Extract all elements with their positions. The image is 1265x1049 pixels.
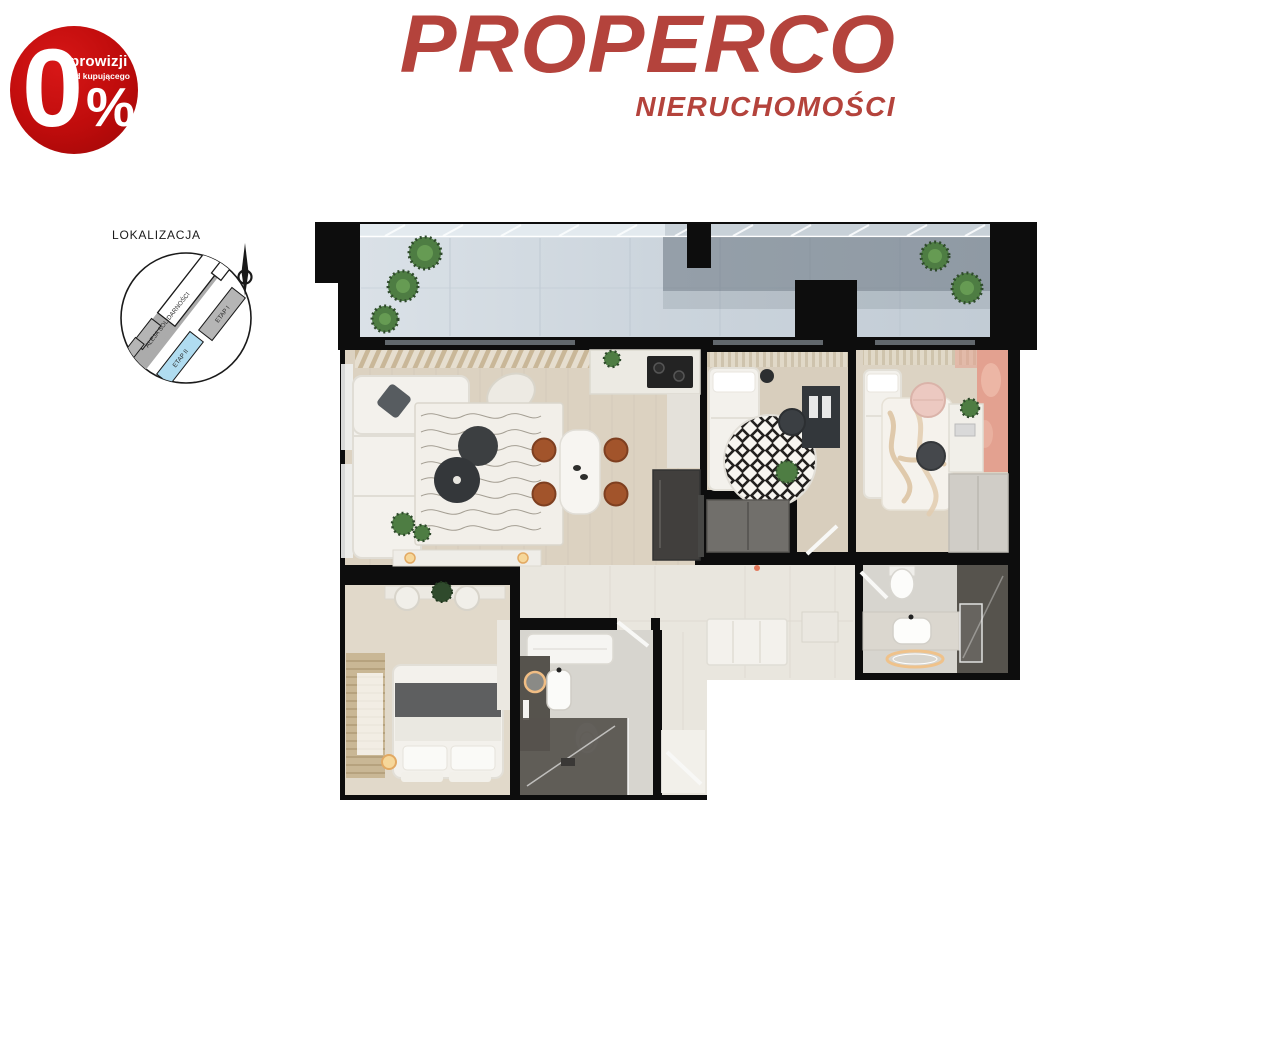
chair: [395, 586, 419, 610]
dining-chair: [533, 483, 556, 506]
dark-plant: [432, 582, 452, 602]
dining-chair: [605, 483, 628, 506]
dining-chair: [605, 439, 628, 462]
balcony-door-glass: [385, 340, 575, 345]
chair: [455, 586, 479, 610]
kitchen-tall-counter: [667, 394, 700, 468]
balcony: [360, 222, 990, 346]
ceiling-lamp: [760, 369, 774, 383]
cooktop: [647, 356, 693, 388]
pillow: [403, 746, 447, 770]
laptop: [955, 424, 975, 436]
pillow: [713, 372, 755, 392]
shower-glass: [960, 604, 982, 662]
living-blinds: [355, 350, 600, 368]
location-title: LOKALIZACJA: [112, 228, 201, 242]
table-lamp: [405, 553, 415, 563]
balcony-wall-block: [795, 280, 857, 346]
compass-icon: [233, 243, 257, 297]
badge-percent-sign: %: [86, 80, 135, 135]
badge-line2: od kupującego: [70, 71, 130, 81]
real-estate-floorplan-page: 0 % prowizji od kupującego PROPERCO NIER…: [0, 0, 1265, 1049]
pillow: [451, 746, 495, 770]
bedside-lamp: [382, 755, 396, 769]
logo-subtitle: NIERUCHOMOŚCI: [366, 91, 896, 123]
floor-plan: [315, 218, 1045, 803]
bed-bottom: [393, 665, 503, 782]
desk-chair: [779, 409, 805, 435]
tv-panel: [698, 495, 704, 557]
warm-spot-light: [754, 565, 760, 571]
shower-bottom: [520, 718, 628, 795]
wood-slat-wall: [346, 653, 385, 778]
properco-logo: PROPERCO NIERUCHOMOŚCI: [366, 4, 896, 123]
drain: [561, 758, 575, 766]
window-left-2: [341, 464, 353, 558]
round-mirror: [525, 672, 545, 692]
kitchen-plant: [604, 351, 620, 367]
window-left-1: [341, 364, 353, 450]
table-lamp: [518, 553, 528, 563]
hall-bench: [707, 619, 787, 665]
sheer-curtain: [357, 673, 383, 755]
badge-line1: prowizji: [70, 53, 127, 70]
sink-right: [893, 618, 931, 644]
sink-bottom: [547, 670, 571, 710]
logo-title: PROPERCO: [345, 4, 896, 86]
balcony-pillar: [687, 222, 711, 268]
towel: [523, 700, 529, 720]
bedroom-middle-blinds: [707, 352, 848, 367]
toilet-right: [889, 566, 915, 599]
desk-plant: [961, 399, 979, 417]
dining-table: [560, 430, 600, 514]
blanket: [395, 683, 501, 717]
console-sideboard: [393, 550, 541, 566]
hall-shelf: [802, 612, 838, 642]
zero-commission-badge: 0 % prowizji od kupującego: [10, 26, 138, 154]
tall-wardrobe: [497, 620, 510, 710]
dining-chair: [533, 439, 556, 462]
pillow: [867, 374, 898, 392]
badge-zero: 0: [22, 30, 83, 148]
bedroom-plant: [776, 461, 798, 483]
desk-middle: [802, 386, 840, 448]
desk-chair: [917, 442, 945, 470]
